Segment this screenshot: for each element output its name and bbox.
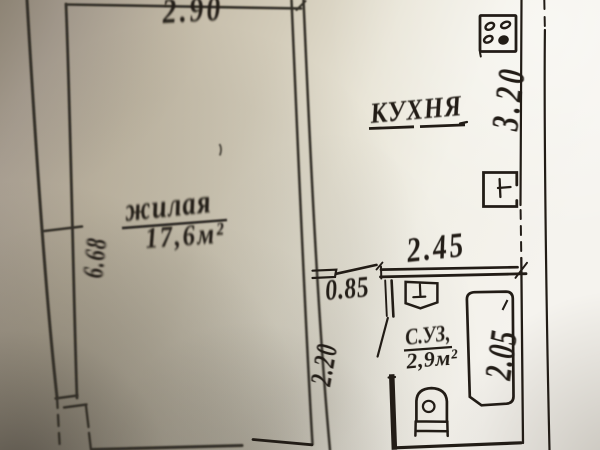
svg-text:17,6м²: 17,6м²	[144, 215, 227, 254]
svg-text:6.68: 6.68	[78, 236, 113, 280]
svg-text:2.05: 2.05	[478, 327, 527, 383]
svg-text:3.20: 3.20	[485, 63, 534, 134]
svg-text:2.90: 2.90	[160, 0, 224, 31]
svg-text:2,9м²: 2,9м²	[404, 344, 459, 373]
svg-text:0.85: 0.85	[324, 270, 371, 307]
svg-text:2.45: 2.45	[404, 225, 468, 270]
